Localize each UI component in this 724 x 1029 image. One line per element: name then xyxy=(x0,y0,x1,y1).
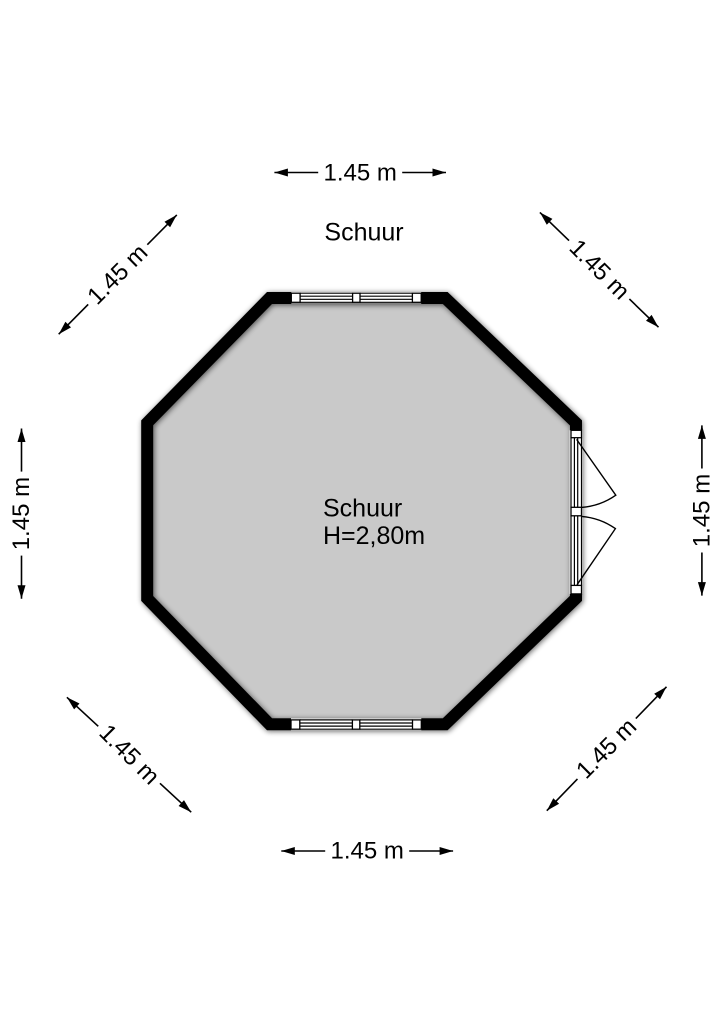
svg-text:1.45 m: 1.45 m xyxy=(8,477,35,550)
svg-text:H=2,80m: H=2,80m xyxy=(323,522,425,550)
svg-text:Schuur: Schuur xyxy=(324,219,403,247)
svg-text:1.45 m: 1.45 m xyxy=(331,838,404,865)
svg-text:Schuur: Schuur xyxy=(323,495,402,523)
svg-text:1.45 m: 1.45 m xyxy=(688,474,715,547)
svg-text:1.45 m: 1.45 m xyxy=(324,160,397,187)
